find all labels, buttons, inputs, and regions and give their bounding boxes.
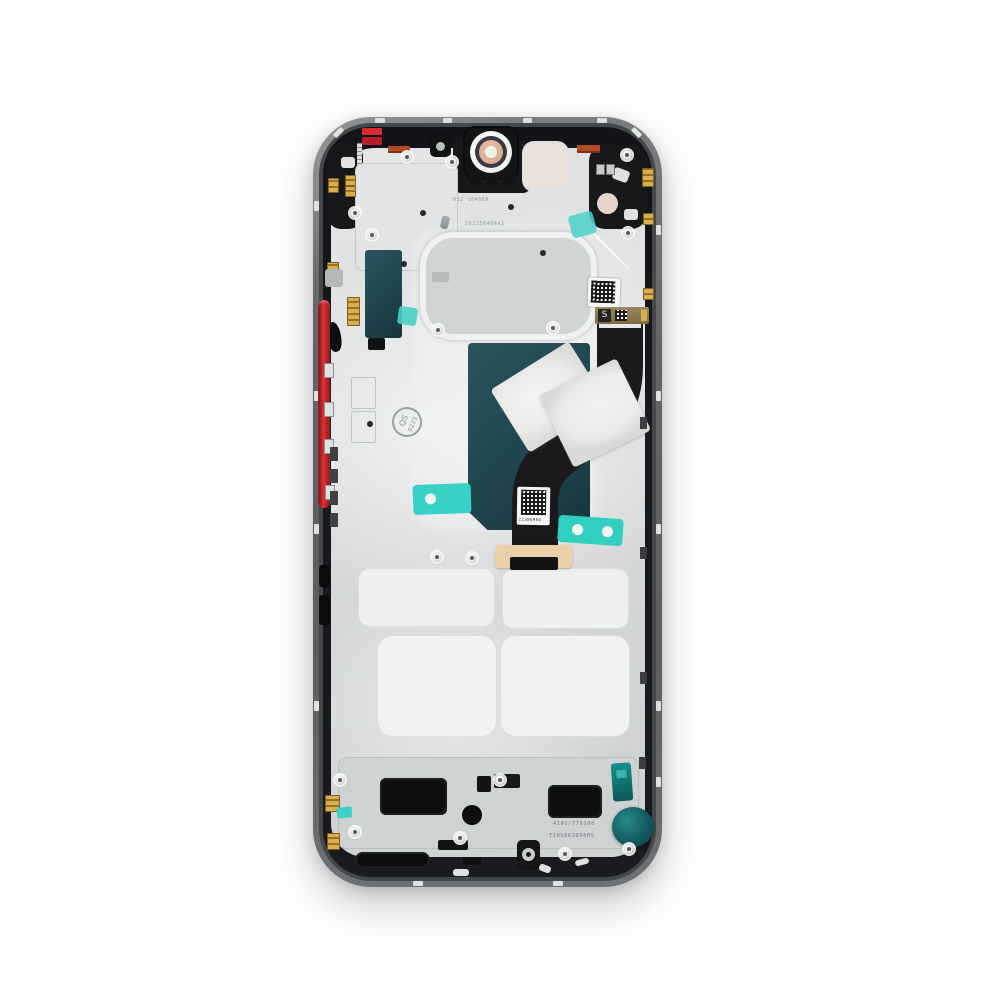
antenna-notch xyxy=(656,701,661,711)
tape-hole xyxy=(572,524,584,536)
camera-mount-tab xyxy=(486,176,497,186)
contact-window xyxy=(324,363,334,378)
tape-hole xyxy=(602,526,614,538)
antenna-notch xyxy=(656,777,661,787)
adhesive-pad xyxy=(500,635,630,737)
speaker-mesh-right xyxy=(548,785,602,818)
qr-sticker-flex: IZ3W8904 xyxy=(517,487,551,526)
edge-step xyxy=(330,491,338,505)
antenna-notch xyxy=(656,225,661,235)
antenna-notch xyxy=(375,118,385,123)
top-right-bracket-area xyxy=(589,145,647,229)
bottom-code: 4101/770108 xyxy=(553,821,595,828)
gasket-outline xyxy=(420,232,597,340)
camera-mount-tab xyxy=(502,176,513,186)
speaker-mesh-left xyxy=(380,778,447,815)
screw xyxy=(447,157,457,167)
qr-sticker-board xyxy=(588,277,621,307)
qr-sticker-code: IZ3W8904 xyxy=(519,517,542,522)
screw xyxy=(335,775,345,785)
screw xyxy=(433,325,443,335)
adhesive-pad xyxy=(377,635,497,737)
pink-round-pad xyxy=(597,193,618,214)
cyan-tape-left xyxy=(412,483,471,515)
edge-step xyxy=(640,672,647,684)
faint-stamp xyxy=(351,377,376,409)
gold-contact xyxy=(345,186,356,197)
metal-block xyxy=(325,269,343,287)
antenna-notch xyxy=(523,118,532,123)
screw xyxy=(624,844,634,854)
screw xyxy=(350,208,360,218)
round-port xyxy=(462,805,482,825)
screw xyxy=(560,849,570,859)
red-sticker xyxy=(362,137,382,145)
button-cutout xyxy=(319,595,330,625)
qr-code-icon xyxy=(521,490,546,515)
flex-marking: S xyxy=(598,309,611,322)
button-cutout xyxy=(319,565,330,587)
gold-contact xyxy=(328,178,339,193)
gold-contact-stack xyxy=(347,297,360,326)
bracket-hole xyxy=(436,142,445,151)
edge-step xyxy=(330,447,338,461)
antenna-notch xyxy=(553,881,563,886)
plate-stamp-code: N12 1049ER xyxy=(453,197,489,204)
contact-window xyxy=(324,402,334,417)
mic-hole xyxy=(526,852,531,857)
bottom-grill xyxy=(355,852,430,868)
shield-tab xyxy=(368,338,385,350)
antenna-notch xyxy=(413,881,423,886)
screw xyxy=(432,552,442,562)
screw xyxy=(455,833,465,843)
screw xyxy=(495,775,505,785)
qs-stamp-line2: 0223 xyxy=(407,416,419,433)
antenna-notch xyxy=(443,118,452,123)
antenna-notch xyxy=(314,524,319,534)
tape-hole xyxy=(425,493,436,504)
metal-tab xyxy=(432,272,449,282)
edge-step xyxy=(330,469,338,483)
screw xyxy=(367,230,377,240)
screw-hole xyxy=(540,250,546,256)
flex-shield-upper-left xyxy=(365,250,402,338)
white-pill xyxy=(453,869,469,876)
cyan-sticker xyxy=(336,806,352,819)
vibration-motor xyxy=(612,807,654,847)
mic-bracket xyxy=(517,840,540,870)
screw-hole xyxy=(420,210,426,216)
screw-hole xyxy=(508,204,514,210)
motor-flex-strip xyxy=(611,762,634,801)
screw-tab xyxy=(624,209,638,220)
edge-step xyxy=(640,417,647,429)
screw xyxy=(623,228,633,238)
qr-code-icon xyxy=(591,281,616,304)
bottom-code: TJHS8K2DX6HS xyxy=(549,833,595,840)
gold-contact xyxy=(327,833,340,850)
product-photo-scene: N12 1049ER 3022504B4A2 QS 0223 IZ3W8904 xyxy=(0,0,1000,1000)
small-black-part xyxy=(463,857,481,865)
mini-qr-icon xyxy=(615,310,627,321)
flex-window xyxy=(616,770,627,779)
screw xyxy=(548,323,558,333)
micro-label-strip xyxy=(357,143,362,167)
camera-mount-tab xyxy=(470,176,481,186)
cyan-tape-right xyxy=(557,515,624,546)
antenna-notch xyxy=(314,701,319,711)
contact-block xyxy=(606,164,615,175)
antenna-notch xyxy=(597,118,607,123)
screw xyxy=(467,553,477,563)
bracket-with-hole xyxy=(430,133,451,157)
screw xyxy=(622,150,632,160)
screw-hole xyxy=(401,261,407,267)
faint-stamp xyxy=(351,411,376,443)
red-sticker xyxy=(362,128,382,135)
cyan-sticker xyxy=(397,306,418,326)
small-black-part xyxy=(477,776,491,792)
flex-connector-strip: S xyxy=(595,307,649,324)
flex-connector-black xyxy=(510,557,558,570)
contact-block xyxy=(596,164,605,175)
antenna-notch xyxy=(656,391,661,401)
screw-hole xyxy=(367,421,373,427)
adhesive-pad xyxy=(502,568,629,629)
orange-component-label xyxy=(577,145,600,153)
gold-contact xyxy=(345,175,356,186)
gold-contact xyxy=(643,213,654,225)
antenna-notch xyxy=(656,524,661,534)
edge-step xyxy=(330,513,338,527)
edge-step xyxy=(639,757,646,769)
camera-lens-center xyxy=(485,146,497,158)
screw xyxy=(350,827,360,837)
phone-midframe: N12 1049ER 3022504B4A2 QS 0223 IZ3W8904 xyxy=(313,117,662,887)
adhesive-pad xyxy=(358,568,495,627)
plate-stamp-code: 3022504B4A2 xyxy=(465,221,505,228)
gold-tip xyxy=(641,310,647,321)
gold-contact xyxy=(642,168,654,187)
antenna-notch xyxy=(314,201,319,211)
screw-tab xyxy=(341,157,355,168)
camera-foam-pad xyxy=(525,144,566,189)
edge-step xyxy=(640,547,647,559)
gold-contact xyxy=(643,288,654,300)
screw xyxy=(402,152,412,162)
